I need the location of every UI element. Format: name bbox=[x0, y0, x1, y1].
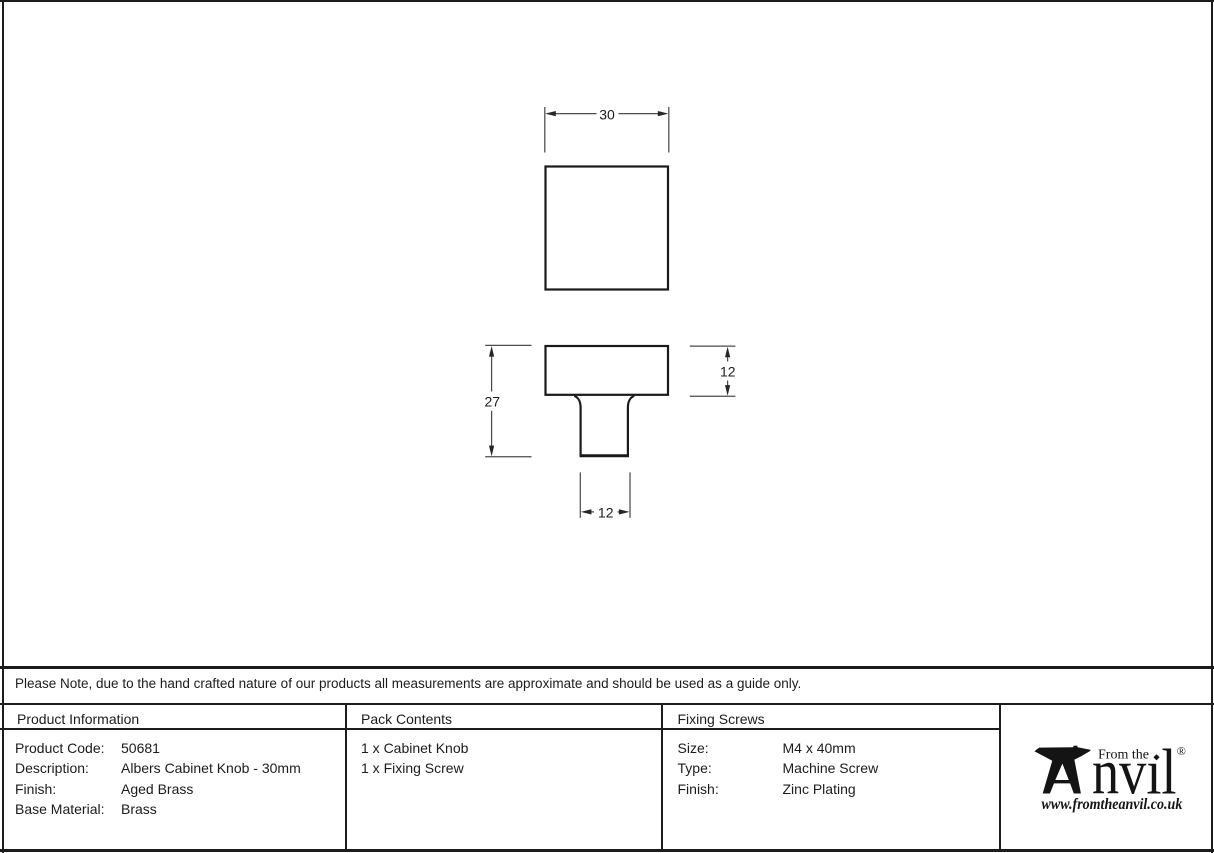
svg-text:From the: From the bbox=[1098, 748, 1149, 763]
svg-text:®: ® bbox=[1177, 744, 1186, 758]
svg-text:12: 12 bbox=[720, 363, 736, 379]
svg-text:12: 12 bbox=[598, 504, 614, 520]
svg-text:30: 30 bbox=[599, 106, 615, 122]
svg-text:27: 27 bbox=[485, 394, 501, 410]
svg-text:www.fromtheanvil.co.uk: www.fromtheanvil.co.uk bbox=[1042, 796, 1183, 813]
